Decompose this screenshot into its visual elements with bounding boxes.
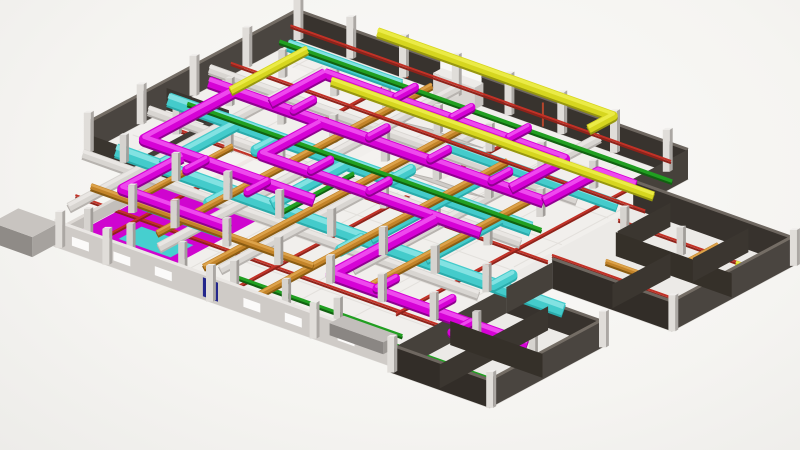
column-face <box>294 0 301 40</box>
column-side <box>144 82 147 124</box>
column-side <box>126 133 129 163</box>
model-viewport[interactable]: Isometric 3D BIM model — building floor … <box>0 0 800 450</box>
column-face <box>170 200 177 228</box>
column-face <box>172 153 179 181</box>
column-side <box>385 226 388 256</box>
column-side <box>675 293 678 331</box>
column-face <box>128 185 135 213</box>
column-side <box>135 184 138 214</box>
column-face <box>379 227 386 255</box>
column-face <box>222 219 229 247</box>
column-face <box>120 135 127 163</box>
column-face <box>327 209 334 237</box>
column-side <box>489 263 492 293</box>
column-side <box>230 170 233 200</box>
column-side <box>436 291 439 321</box>
column-face <box>430 293 437 321</box>
column-face <box>206 266 213 302</box>
column-side <box>493 370 496 408</box>
column-face <box>668 295 675 331</box>
column-side <box>317 301 320 339</box>
column-face <box>790 230 797 266</box>
bim-canvas <box>0 0 800 450</box>
column-side <box>229 217 232 247</box>
column-side <box>797 228 800 266</box>
column-side <box>437 244 440 274</box>
column-side <box>384 273 387 303</box>
column-face <box>346 17 353 59</box>
column-side <box>91 111 94 153</box>
column-face <box>310 303 317 339</box>
column-face <box>599 311 606 347</box>
column-face <box>137 84 144 124</box>
column-side <box>282 189 285 219</box>
column-face <box>84 113 91 153</box>
column-side <box>683 226 686 256</box>
column-side <box>332 254 335 284</box>
column-face <box>223 172 230 200</box>
column-side <box>109 227 112 265</box>
column-side <box>249 26 252 68</box>
column-side <box>670 128 673 172</box>
column-face <box>677 227 684 255</box>
column-face <box>102 229 109 265</box>
column-face <box>486 372 493 408</box>
column-face <box>55 212 62 248</box>
column-face <box>387 337 394 373</box>
column-face <box>431 246 438 274</box>
column-face <box>274 237 281 265</box>
column-face <box>242 27 249 67</box>
column-face <box>663 130 670 172</box>
column-side <box>301 0 304 40</box>
column-face <box>275 190 282 218</box>
column-side <box>213 264 216 302</box>
column-side <box>177 199 180 229</box>
column-side <box>394 335 397 373</box>
column-face <box>378 274 385 302</box>
column-face <box>482 264 489 292</box>
column-side <box>178 152 181 182</box>
column-face <box>326 256 333 284</box>
column-side <box>281 236 284 266</box>
column-side <box>62 210 65 248</box>
column-side <box>353 15 356 59</box>
column-side <box>333 207 336 237</box>
column-side <box>606 310 609 348</box>
column-face <box>190 56 197 96</box>
column-side <box>197 54 200 96</box>
